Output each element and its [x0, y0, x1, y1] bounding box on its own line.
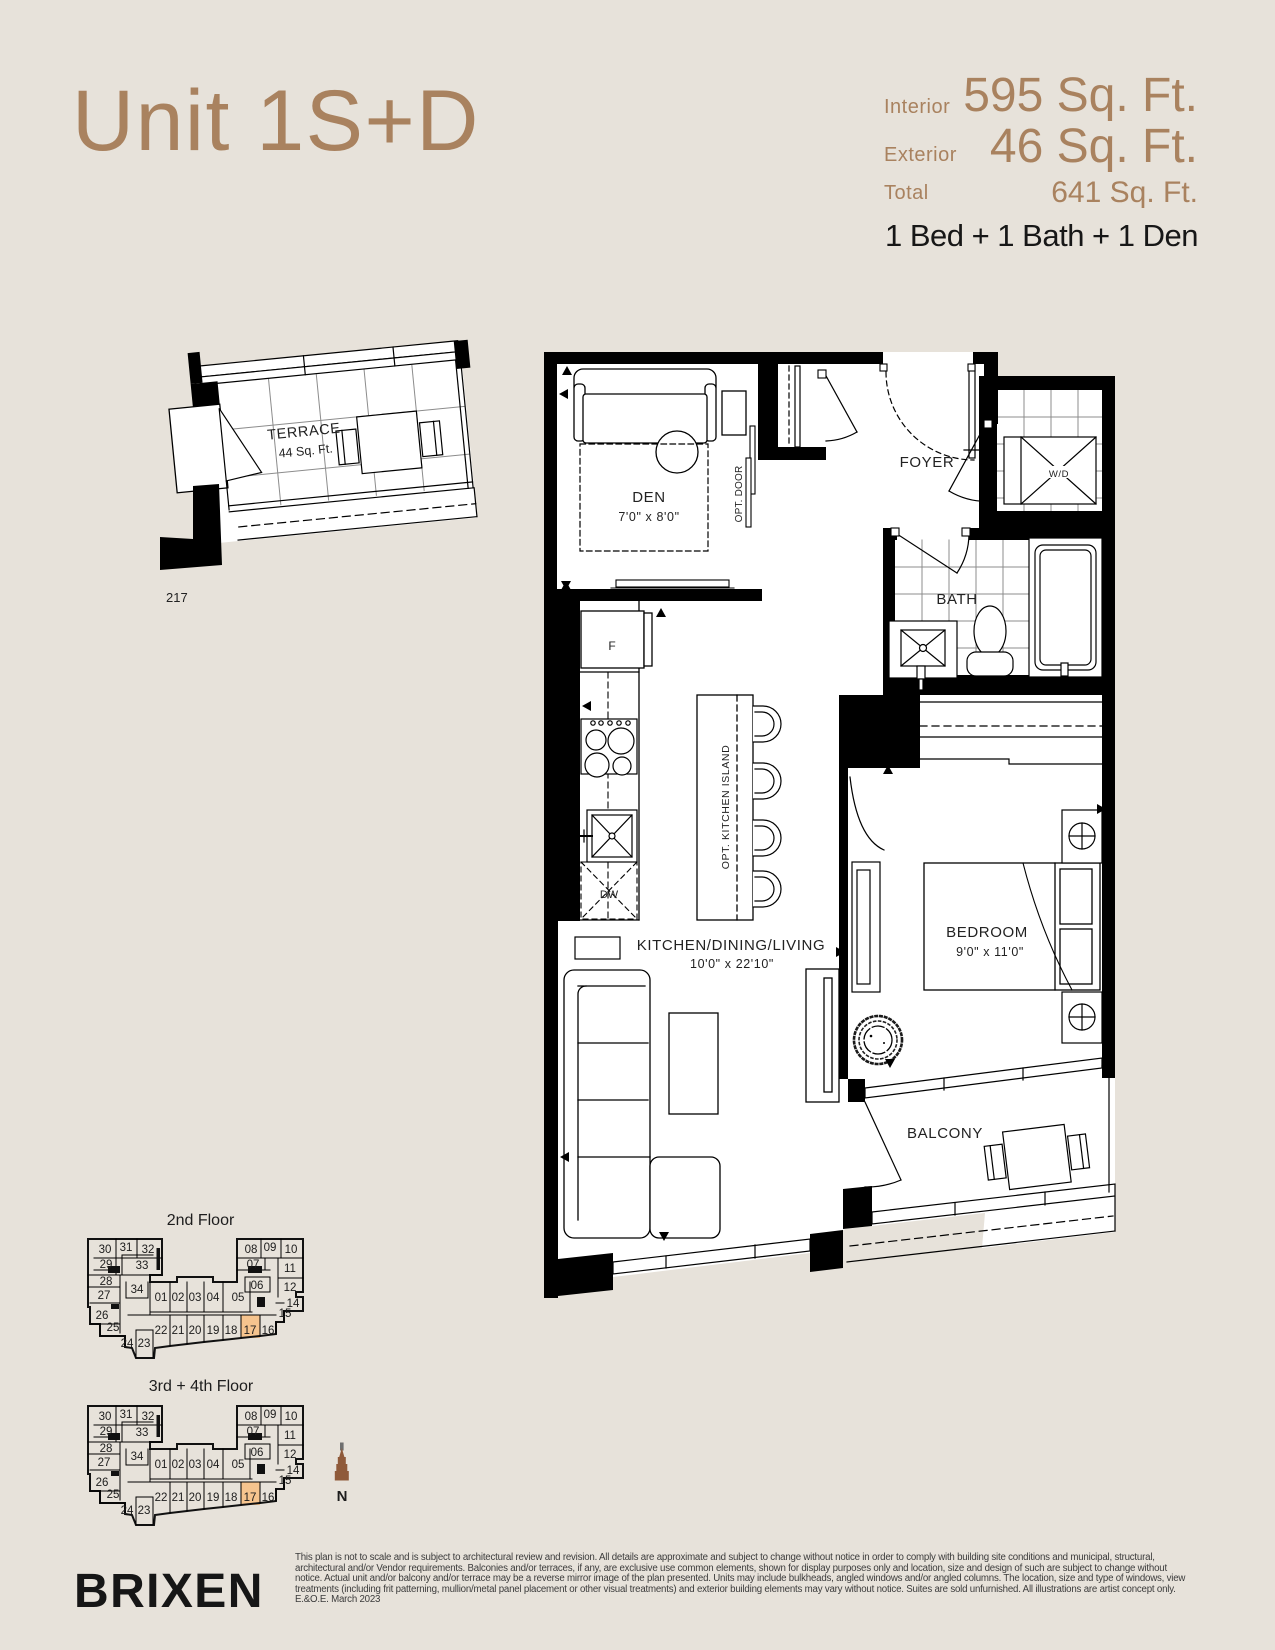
svg-text:9'0" x 11'0": 9'0" x 11'0" — [956, 945, 1024, 959]
svg-text:DEN: DEN — [632, 489, 665, 506]
svg-text:BATH: BATH — [936, 591, 977, 608]
svg-text:BALCONY: BALCONY — [907, 1125, 983, 1142]
svg-text:BEDROOM: BEDROOM — [946, 924, 1028, 941]
svg-text:KITCHEN/DINING/LIVING: KITCHEN/DINING/LIVING — [637, 937, 825, 954]
svg-text:W/D: W/D — [1049, 469, 1069, 480]
svg-text:10'0" x 22'10": 10'0" x 22'10" — [690, 957, 774, 971]
svg-text:N: N — [337, 1488, 348, 1505]
svg-text:7'0" x 8'0": 7'0" x 8'0" — [618, 510, 679, 524]
svg-text:OPT. KITCHEN ISLAND: OPT. KITCHEN ISLAND — [720, 745, 732, 870]
svg-text:FOYER: FOYER — [900, 454, 955, 471]
svg-text:DW: DW — [600, 889, 619, 901]
svg-text:F: F — [608, 639, 615, 653]
svg-text:OPT. DOOR: OPT. DOOR — [734, 466, 745, 523]
